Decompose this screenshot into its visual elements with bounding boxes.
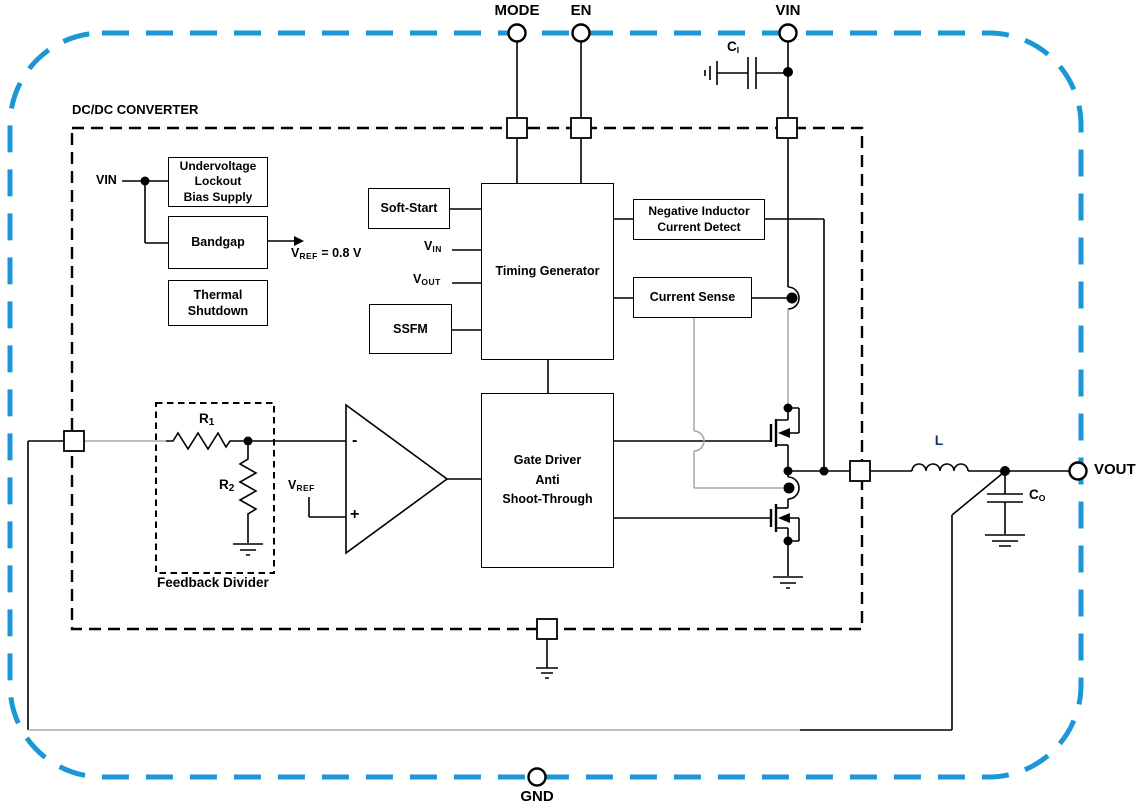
comp-vref-sub: REF bbox=[296, 483, 315, 493]
en-pin-label: EN bbox=[571, 3, 592, 20]
r2-sub: 2 bbox=[229, 483, 235, 494]
co-base: C bbox=[1029, 487, 1039, 502]
feedback-divider-title: Feedback Divider bbox=[157, 576, 269, 591]
block-bandgap-label: Bandgap bbox=[191, 234, 244, 250]
block-current-sense-label: Current Sense bbox=[650, 289, 735, 305]
ci-ground bbox=[705, 61, 717, 85]
block-diagram: Undervoltage Lockout Bias Supply Bandgap… bbox=[0, 0, 1142, 811]
resistor-r1 bbox=[166, 433, 346, 449]
block-negative-inductor-current-detect: Negative Inductor Current Detect bbox=[633, 199, 765, 240]
r2-label: R2 bbox=[219, 478, 235, 494]
en-pin bbox=[573, 25, 590, 42]
block-soft-start-label: Soft-Start bbox=[381, 200, 438, 216]
block-timing-label: Timing Generator bbox=[496, 263, 600, 279]
vout-pin-label: VOUT bbox=[1094, 462, 1136, 479]
wires-gray bbox=[28, 309, 800, 730]
gnd-boundary-pin bbox=[537, 619, 557, 639]
vref-arrowhead bbox=[294, 236, 304, 246]
ci-sub: I bbox=[737, 45, 740, 55]
vref-eq-sub: REF bbox=[299, 251, 318, 261]
block-ssfm: SSFM bbox=[369, 304, 452, 354]
lowside-fet bbox=[771, 504, 799, 541]
lowfet-ground bbox=[773, 541, 803, 588]
block-nicd-label: Negative Inductor Current Detect bbox=[648, 204, 749, 235]
en-boundary-pin bbox=[571, 118, 591, 138]
ci-label: CI bbox=[727, 40, 740, 55]
comparator-minus-label: - bbox=[352, 432, 357, 450]
vin-boundary-pin bbox=[777, 118, 797, 138]
co-label: CO bbox=[1029, 488, 1046, 503]
co-sub: O bbox=[1039, 493, 1046, 503]
mode-pin-label: MODE bbox=[495, 3, 540, 20]
highside-fet bbox=[771, 408, 799, 447]
tg-vin-sub: IN bbox=[432, 244, 442, 254]
converter-title: DC/DC CONVERTER bbox=[72, 103, 198, 117]
vref-equation: VREF = 0.8 V bbox=[291, 247, 361, 261]
tg-vout-label: VOUT bbox=[413, 273, 441, 287]
vref-eq-rest: = 0.8 V bbox=[318, 246, 361, 260]
vin-pin bbox=[780, 25, 797, 42]
r1-sub: 1 bbox=[209, 417, 215, 428]
feedback-divider-boundary bbox=[156, 403, 274, 573]
block-uvlo: Undervoltage Lockout Bias Supply bbox=[168, 157, 268, 207]
r2-ground bbox=[233, 544, 263, 555]
highside-fet-body-arrow bbox=[778, 428, 790, 438]
gnd-pin-label: GND bbox=[520, 789, 553, 806]
resistor-r2 bbox=[240, 441, 256, 543]
mode-boundary-pin bbox=[507, 118, 527, 138]
block-bandgap: Bandgap bbox=[168, 216, 268, 269]
tg-vin-label: VIN bbox=[424, 240, 442, 254]
comparator-vref-label: VREF bbox=[288, 479, 315, 493]
sw-boundary-pin bbox=[850, 461, 870, 481]
r1-label: R1 bbox=[199, 412, 215, 428]
error-comparator bbox=[346, 405, 447, 553]
block-uvlo-label: Undervoltage Lockout Bias Supply bbox=[180, 159, 257, 206]
vin-internal-label: VIN bbox=[96, 174, 117, 188]
block-current-sense: Current Sense bbox=[633, 277, 752, 318]
gnd-pin bbox=[529, 769, 546, 786]
vin-pin-label: VIN bbox=[775, 3, 800, 20]
mode-pin bbox=[509, 25, 526, 42]
block-soft-start: Soft-Start bbox=[368, 188, 450, 229]
inductor-coil bbox=[912, 464, 968, 471]
inductor-label: L bbox=[935, 433, 944, 448]
lowside-fet-body-arrow bbox=[778, 513, 790, 523]
block-thermal-shutdown: Thermal Shutdown bbox=[168, 280, 268, 326]
co-ground bbox=[985, 535, 1025, 546]
block-gate-driver-label: Gate Driver Anti Shoot-Through bbox=[502, 451, 592, 509]
r2-base: R bbox=[219, 477, 229, 492]
r1-base: R bbox=[199, 411, 209, 426]
ci-base: C bbox=[727, 39, 737, 54]
block-gate-driver: Gate Driver Anti Shoot-Through bbox=[481, 393, 614, 568]
fb-boundary-pin bbox=[64, 431, 84, 451]
gnd-pin-ground bbox=[536, 639, 558, 678]
block-timing-generator: Timing Generator bbox=[481, 183, 614, 360]
block-ssfm-label: SSFM bbox=[393, 321, 428, 337]
comparator-plus-label: + bbox=[350, 506, 359, 524]
tg-vout-sub: OUT bbox=[421, 277, 440, 287]
block-thermal-label: Thermal Shutdown bbox=[188, 287, 248, 320]
vout-pin bbox=[1070, 463, 1087, 480]
